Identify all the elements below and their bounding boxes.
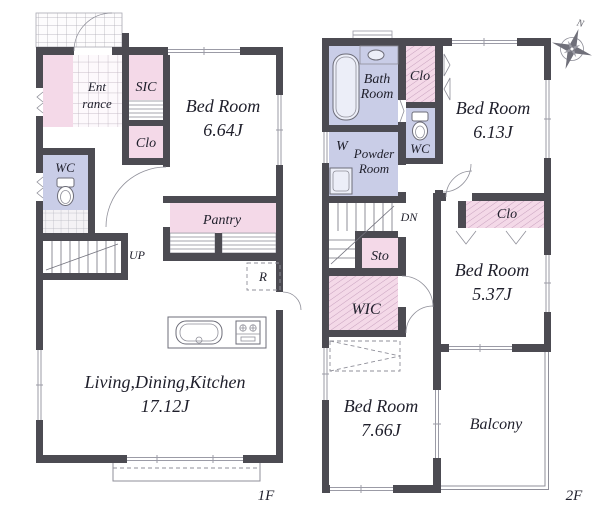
window <box>452 38 517 46</box>
pantry-shelves <box>170 233 276 253</box>
closet-1f-label: Clo <box>136 136 156 151</box>
bedroom-c-size: 7.66J <box>361 420 402 440</box>
floor1-label: 1F <box>258 488 276 504</box>
washer-label: W <box>336 139 349 154</box>
louver-window <box>36 88 43 116</box>
entrance-porch-tiles <box>36 13 122 47</box>
window <box>322 348 329 400</box>
door-swing <box>446 171 472 197</box>
stairs-down-label: DN <box>400 210 419 224</box>
door-swing <box>106 167 166 227</box>
window <box>36 350 43 420</box>
stairs-up-label: UP <box>129 248 146 262</box>
wc-1f-label: WC <box>55 160 75 175</box>
folding-door <box>400 100 404 122</box>
bedroom-c-name: Bed Room <box>344 396 418 416</box>
wc-floor-tiles <box>43 210 88 233</box>
stove-icon <box>236 321 260 344</box>
stairs-up <box>46 241 118 273</box>
kitchen-counter <box>168 317 266 348</box>
sic-label: SIC <box>136 80 158 95</box>
bedroom-1f-name: Bed Room <box>186 96 260 116</box>
floor-2-plan: N Bath Room Clo Bed Room 6.13J W Powder … <box>322 12 600 504</box>
balcony-label: Balcony <box>470 416 523 433</box>
louver-window <box>36 173 43 201</box>
bath-label-line1: Bath <box>364 72 390 87</box>
window <box>330 485 393 493</box>
window <box>168 47 240 55</box>
toilet-icon <box>57 178 74 206</box>
balcony-sliding-door <box>433 390 441 458</box>
bedroom-b-size: 5.37J <box>472 284 513 304</box>
terrace-outline <box>113 463 260 481</box>
powder-label-line1: Powder <box>353 146 395 161</box>
washing-machine-icon <box>330 168 352 194</box>
door-swing <box>402 276 433 307</box>
bath-label-line2: Room <box>360 87 394 102</box>
floorplan-drawing: Ent rance SIC Clo Bed Room 6.64J WC UP P… <box>0 0 600 513</box>
floor2-label: 2F <box>566 488 584 504</box>
toilet-icon <box>412 112 428 140</box>
floor-1-plan: Ent rance SIC Clo Bed Room 6.64J WC UP P… <box>36 13 301 504</box>
floorplan-canvas: Ent rance SIC Clo Bed Room 6.64J WC UP P… <box>0 0 600 513</box>
closet-mid-label: Clo <box>497 207 517 222</box>
kitchen-sink-icon <box>176 321 222 344</box>
window <box>544 255 551 312</box>
door-swing <box>406 306 433 333</box>
sliding-window <box>127 455 243 463</box>
wc-2f-label: WC <box>410 141 430 156</box>
entrance-label-line1: Ent <box>87 79 106 94</box>
ldk-name: Living,Dining,Kitchen <box>84 372 246 392</box>
compass-icon: N <box>546 12 600 75</box>
entrance-label-line2: rance <box>82 96 112 111</box>
ldk-size: 17.12J <box>141 396 191 416</box>
wic-label: WIC <box>351 301 381 318</box>
fridge-label: R <box>258 269 267 284</box>
compass-north-label: N <box>574 17 586 30</box>
bedroom-a-name: Bed Room <box>456 98 530 118</box>
bedroom-1f-size: 6.64J <box>203 120 244 140</box>
bedroom-a-size: 6.13J <box>473 122 514 142</box>
dashed-area <box>330 341 400 371</box>
window <box>544 80 551 158</box>
bedroom-b-name: Bed Room <box>455 260 529 280</box>
bathtub-icon <box>333 54 359 120</box>
pantry-label: Pantry <box>202 213 242 228</box>
door-swing <box>283 292 301 310</box>
balcony-sliding-door <box>449 344 512 352</box>
closet-top-label: Clo <box>410 69 430 84</box>
window <box>322 132 329 163</box>
window <box>276 95 283 165</box>
sic-shelf-stripes <box>129 100 163 120</box>
powder-label-line2: Room <box>358 161 389 176</box>
storage-label: Sto <box>371 249 389 264</box>
high-window <box>353 31 392 39</box>
